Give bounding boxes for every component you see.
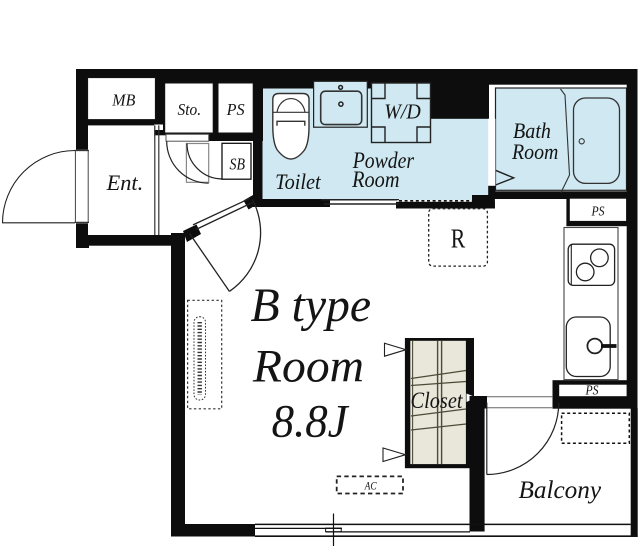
svg-text:R: R [451, 223, 466, 253]
svg-text:PS: PS [585, 384, 599, 399]
svg-text:Closet: Closet [411, 388, 464, 413]
svg-text:Toilet: Toilet [275, 169, 321, 194]
svg-text:Sto.: Sto. [178, 100, 202, 119]
svg-text:Room: Room [511, 139, 558, 164]
svg-text:Balcony: Balcony [518, 475, 601, 504]
svg-text:Ent.: Ent. [106, 170, 144, 195]
svg-text:SB: SB [230, 155, 246, 174]
svg-text:AC: AC [364, 479, 378, 493]
svg-text:MB: MB [111, 90, 136, 109]
svg-text:B type: B type [251, 279, 372, 332]
svg-text:PS: PS [226, 100, 245, 119]
svg-text:W/D: W/D [384, 100, 421, 124]
svg-text:Room: Room [351, 167, 399, 192]
svg-text:Room: Room [252, 340, 364, 392]
svg-text:8.8J: 8.8J [272, 395, 350, 447]
svg-text:PS: PS [591, 205, 605, 220]
